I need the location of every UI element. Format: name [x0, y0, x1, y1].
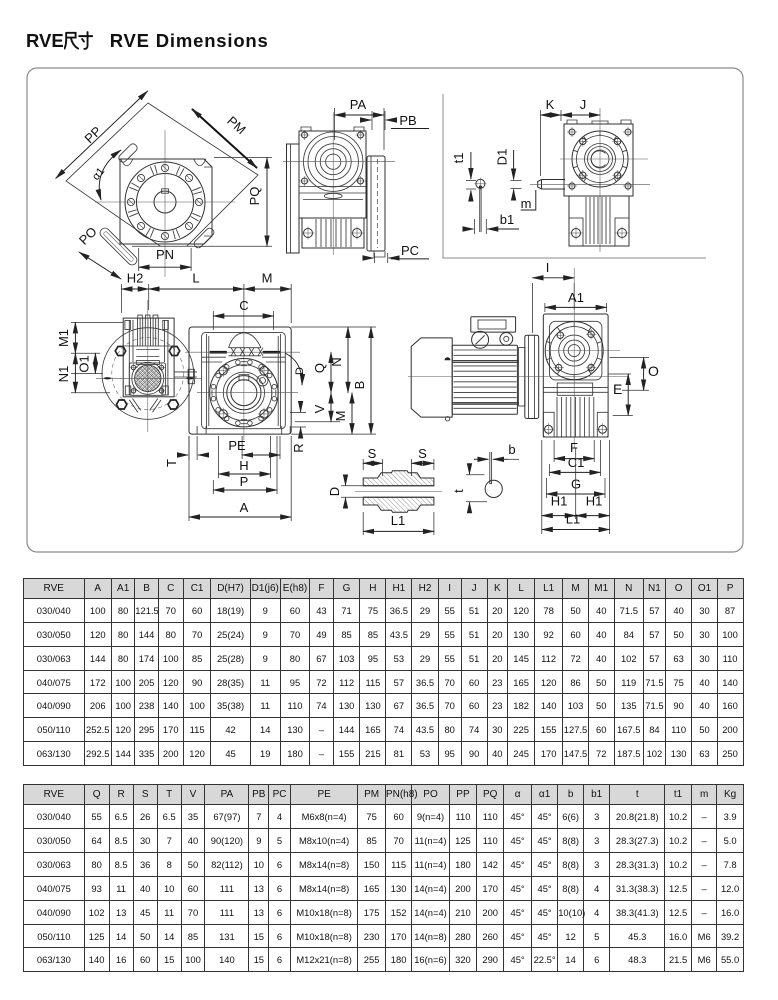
- svg-text:D1: D1: [495, 149, 510, 166]
- svg-text:D: D: [327, 487, 342, 496]
- svg-text:PP: PP: [81, 123, 104, 146]
- svg-text:V: V: [312, 404, 327, 413]
- svg-text:t: t: [451, 489, 466, 493]
- svg-text:E: E: [613, 381, 622, 397]
- svg-text:M1: M1: [56, 329, 71, 347]
- svg-text:m: m: [521, 196, 532, 211]
- svg-text:N1: N1: [56, 366, 71, 383]
- svg-text:M: M: [333, 411, 348, 422]
- svg-text:K: K: [546, 97, 555, 112]
- svg-text:T: T: [164, 459, 179, 467]
- svg-text:b1: b1: [500, 212, 514, 227]
- svg-text:PM: PM: [224, 113, 249, 137]
- svg-text:t1: t1: [451, 153, 466, 164]
- svg-text:H1: H1: [551, 494, 568, 509]
- svg-text:H: H: [239, 458, 248, 473]
- svg-text:L1: L1: [566, 512, 580, 527]
- svg-text:O: O: [648, 363, 659, 379]
- svg-text:P: P: [240, 474, 249, 489]
- svg-text:S: S: [368, 446, 377, 461]
- svg-text:H1: H1: [586, 494, 603, 509]
- svg-text:A: A: [240, 500, 249, 515]
- svg-text:PO: PO: [76, 224, 100, 248]
- svg-text:D: D: [294, 367, 306, 375]
- svg-text:A1: A1: [568, 290, 584, 305]
- svg-text:J: J: [580, 97, 587, 112]
- svg-text:Q: Q: [312, 363, 327, 373]
- svg-text:B: B: [352, 381, 367, 390]
- svg-text:PE: PE: [228, 438, 246, 453]
- svg-text:N: N: [329, 357, 344, 366]
- svg-text:PA: PA: [350, 97, 367, 112]
- svg-text:α1: α1: [90, 166, 107, 183]
- svg-text:L1: L1: [391, 513, 405, 528]
- svg-text:H2: H2: [127, 271, 144, 286]
- svg-text:PN: PN: [156, 247, 174, 262]
- svg-text:I: I: [546, 260, 550, 275]
- svg-text:PC: PC: [401, 243, 419, 258]
- svg-text:S: S: [418, 446, 427, 461]
- svg-text:M: M: [262, 271, 273, 286]
- svg-text:C: C: [239, 298, 248, 313]
- svg-text:b: b: [508, 442, 515, 457]
- svg-text:L: L: [192, 271, 199, 286]
- svg-text:PB: PB: [399, 113, 416, 128]
- svg-text:O1: O1: [77, 355, 92, 372]
- svg-text:R: R: [291, 443, 306, 452]
- svg-text:PQ: PQ: [247, 187, 262, 206]
- svg-text:F: F: [570, 440, 578, 455]
